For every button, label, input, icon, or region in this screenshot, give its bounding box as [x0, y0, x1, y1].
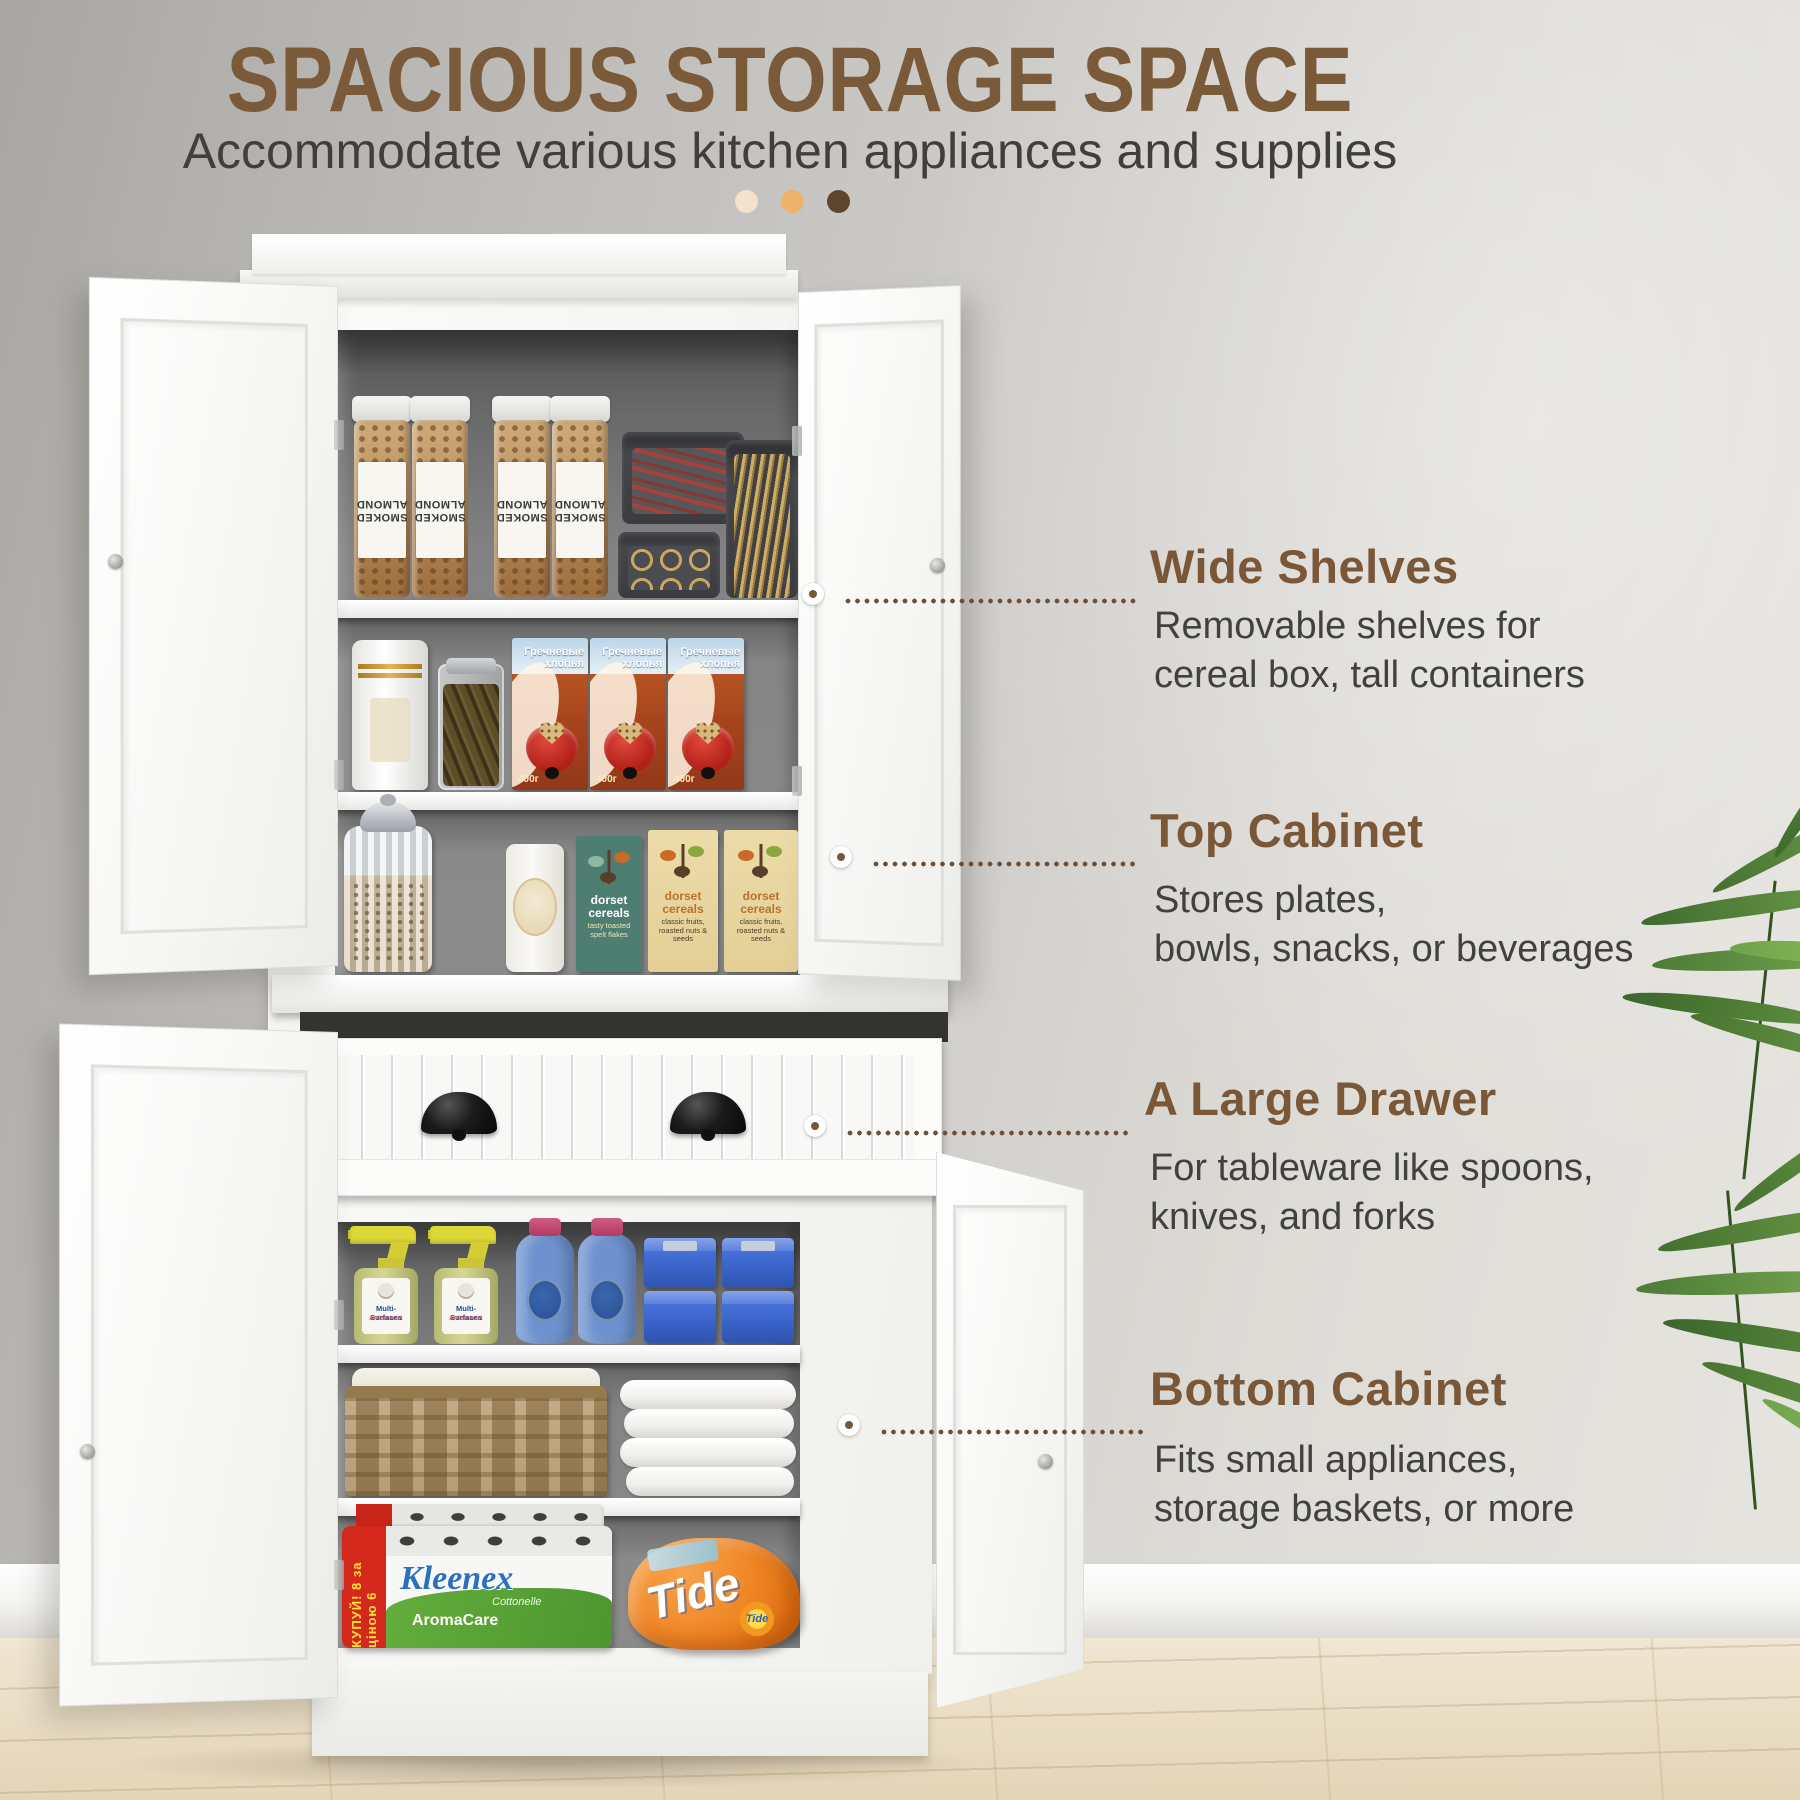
callout-desc-line: storage baskets, or more [1154, 1485, 1574, 1534]
callout-description: Fits small appliances, storage baskets, … [1154, 1436, 1574, 1534]
callout-leader-line [880, 1428, 1144, 1436]
callout-title: Bottom Cabinet [1150, 1362, 1507, 1416]
product-infographic: SMOKED ALMOND SMOKED ALMOND SMOKED ALMON… [0, 0, 1800, 1800]
callout-marker-dot [838, 1414, 860, 1436]
callout-bottom-cabinet: Bottom Cabinet Fits small appliances, st… [0, 0, 1800, 1800]
callout-desc-line: Fits small appliances, [1154, 1436, 1574, 1485]
